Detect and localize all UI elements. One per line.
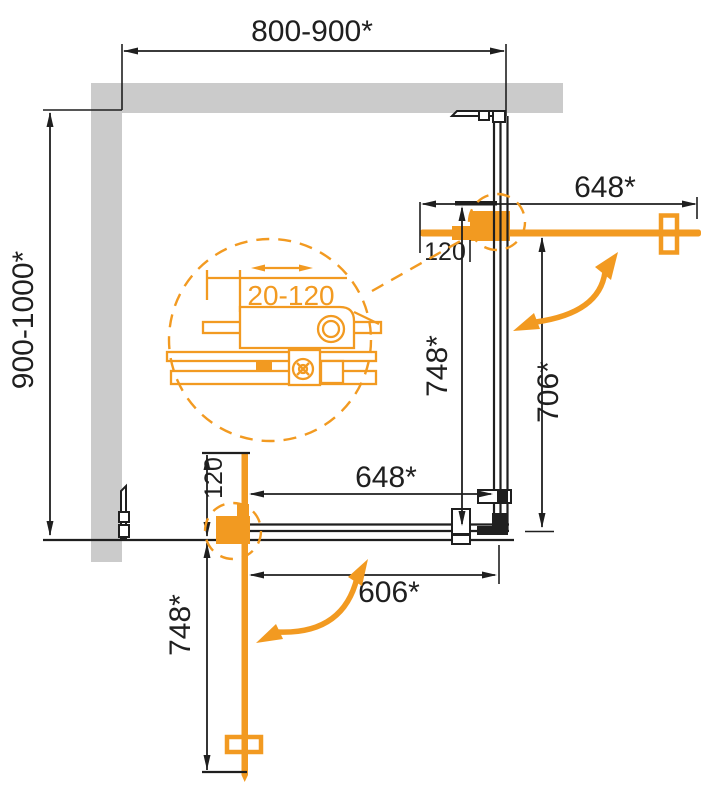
- corner-clamp-2: [452, 535, 470, 544]
- swing-arrow-head-down: [513, 313, 540, 331]
- bottom-door-glass: [242, 453, 249, 775]
- dim-label-overall-width: 800-900*: [251, 15, 373, 48]
- swing-arc: [536, 272, 605, 322]
- clamp-pad: [256, 361, 272, 370]
- profile-bar-3: [171, 371, 376, 384]
- swing-arc: [277, 578, 357, 632]
- bottom-door-tip: [242, 775, 249, 782]
- top-wall: [93, 83, 563, 113]
- dim-label-bottom-glass-a: 748*: [164, 594, 197, 656]
- left-wall-profile-tab-2: [119, 525, 129, 537]
- corner-elbow-horizontal: [477, 526, 508, 535]
- dimension-bottom-panel-width: 648*: [249, 461, 493, 498]
- top-wall-profile-tab-2: [493, 111, 505, 122]
- shower-enclosure-plan-drawing: 800-900* 900-1000* 648* 120 748* 706*: [0, 0, 721, 800]
- dim-label-overall-depth: 900-1000*: [7, 250, 40, 389]
- dimension-right-glass-b: 706*: [525, 237, 565, 532]
- dimension-right-hinge-offset: 120: [424, 238, 470, 266]
- dim-label-bottom-panel-width: 648*: [355, 461, 417, 494]
- corner-bracket-top-fill: [497, 491, 508, 502]
- dim-label-right-glass-a: 748*: [421, 335, 454, 397]
- swing-arrow-head-down: [256, 624, 283, 643]
- left-wall: [91, 83, 122, 562]
- arrow-right: [682, 201, 697, 208]
- right-door-hinge-block: [470, 211, 510, 241]
- adjustment-arrow-left: [251, 265, 265, 272]
- clamp-side-block: [321, 361, 343, 383]
- wall-profile-detail-view: 20-120: [167, 239, 381, 441]
- hinge-detail-markers: [205, 194, 525, 559]
- top-wall-profile-tab-1: [479, 111, 489, 120]
- arrow-right: [482, 572, 497, 579]
- bottom-door-swing-arrow: [256, 559, 368, 643]
- right-door-swing-arrow: [513, 252, 618, 331]
- arrow-down: [539, 513, 546, 528]
- profile-bar-2: [167, 352, 376, 361]
- left-wall-profile-tab-1: [119, 512, 129, 522]
- arrow-left: [249, 491, 264, 498]
- arrow-up: [459, 206, 466, 221]
- swing-arrow-head-up: [595, 252, 618, 280]
- arrow-right: [490, 48, 505, 55]
- dim-label-right-glass-b: 706*: [532, 361, 565, 423]
- arrow-left: [123, 48, 138, 55]
- dim-label-bottom-opening-width: 606*: [358, 576, 420, 609]
- dimension-bottom-opening-width: 606*: [249, 545, 499, 609]
- adjustment-arrow-right: [299, 265, 313, 272]
- dim-label-bottom-hinge-offset: 120: [200, 457, 228, 499]
- arrow-up: [539, 237, 546, 252]
- arrow-up: [47, 112, 54, 127]
- arrow-left: [249, 572, 264, 579]
- bottom-door-hinge-block: [216, 516, 250, 544]
- arrow-left: [421, 201, 436, 208]
- arrow-down: [47, 521, 54, 536]
- dim-label-right-door-width: 648*: [574, 171, 636, 204]
- drawing-page: 800-900* 900-1000* 648* 120 748* 706*: [0, 0, 721, 800]
- arrow-down: [204, 755, 211, 770]
